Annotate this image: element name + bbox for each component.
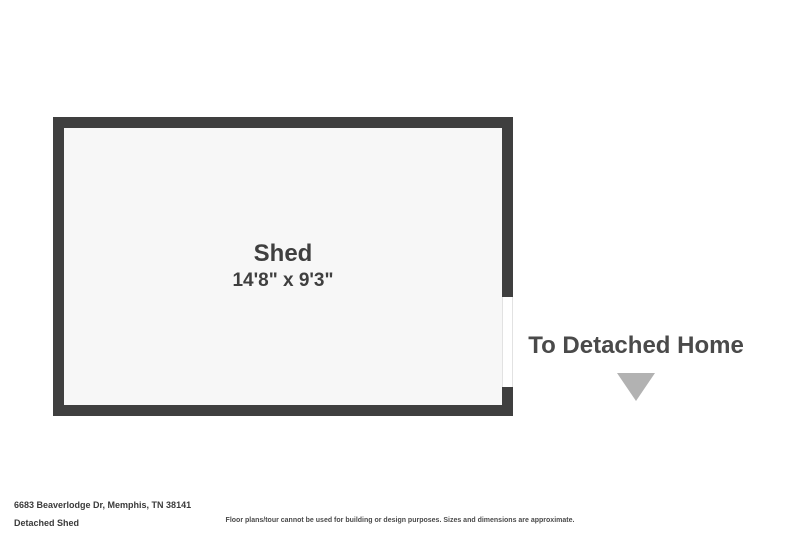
exit-annotation-label: To Detached Home — [520, 332, 752, 359]
room-dimensions: 14'8" x 9'3" — [232, 270, 333, 292]
room-name: Shed — [254, 241, 313, 267]
triangle-down-icon — [617, 373, 655, 401]
room-label: Shed 14'8" x 9'3" — [64, 128, 502, 405]
disclaimer-text: Floor plans/tour cannot be used for buil… — [0, 517, 800, 525]
exit-annotation: To Detached Home — [520, 332, 752, 401]
property-address: 6683 Beaverlodge Dr, Memphis, TN 38141 — [14, 500, 191, 510]
door-opening — [502, 297, 513, 387]
shed-floorplan: Shed 14'8" x 9'3" — [53, 117, 513, 416]
floorplan-page: Shed 14'8" x 9'3" To Detached Home 6683 … — [0, 0, 800, 533]
